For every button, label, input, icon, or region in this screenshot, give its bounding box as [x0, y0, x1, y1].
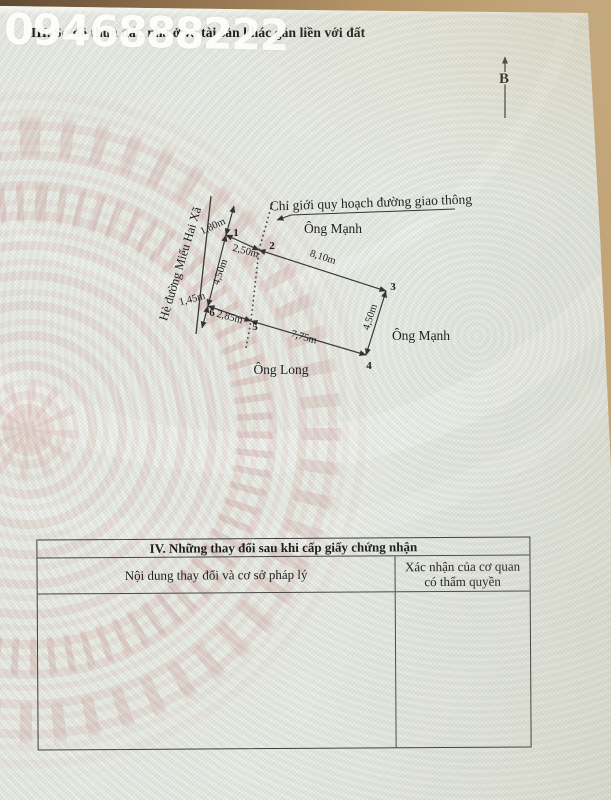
planning-note-label: Chỉ giới quy hoạch đường giao thông [269, 191, 472, 213]
col-header-authority-confirmation: Xác nhận của cơ quan có thẩm quyền [395, 555, 529, 591]
body-cell-change-content [38, 592, 397, 749]
body-cell-authority-confirmation [396, 591, 531, 747]
point-4: 4 [366, 360, 372, 372]
dim-edge-2-3: 8,10m [308, 248, 337, 267]
dim-edge-1-2: 2,50m [231, 243, 259, 260]
dim-frontage-ext-top: 1,80m [199, 216, 228, 237]
neighbor-right-label: Ông Mạnh [392, 328, 450, 343]
neighbor-bottom-label: Ông Long [253, 362, 308, 377]
neighbor-top-label: Ông Mạnh [304, 221, 362, 236]
frontage-ext-bottom [202, 306, 208, 328]
changes-table-header-row: Nội dung thay đổi và cơ sở pháp lý Xác n… [37, 555, 529, 594]
certificate-photo: III. Sơ đồ thửa đất, nhà ở và tài sản kh… [0, 0, 611, 800]
dim-frontage-ext-bottom: 1,45m [178, 291, 206, 308]
col-header-change-content: Nội dung thay đổi và cơ sở pháp lý [37, 556, 395, 593]
point-2: 2 [269, 240, 275, 252]
point-6: 6 [209, 307, 215, 319]
changes-table: IV. Những thay đổi sau khi cấp giấy chứn… [36, 536, 531, 750]
dim-edge-3-4: 4,50m [361, 303, 380, 332]
north-label: B [499, 71, 509, 87]
dim-edge-4-5: 7,75m [289, 329, 318, 347]
dim-edge-5-6: 2,85m [215, 309, 243, 326]
north-arrow: B [499, 57, 509, 118]
changes-table-body-row [38, 591, 531, 749]
point-1: 1 [233, 227, 239, 239]
point-5: 5 [252, 321, 258, 333]
point-3: 3 [390, 281, 396, 293]
dim-edge-6-1: 4,50m [211, 258, 230, 287]
